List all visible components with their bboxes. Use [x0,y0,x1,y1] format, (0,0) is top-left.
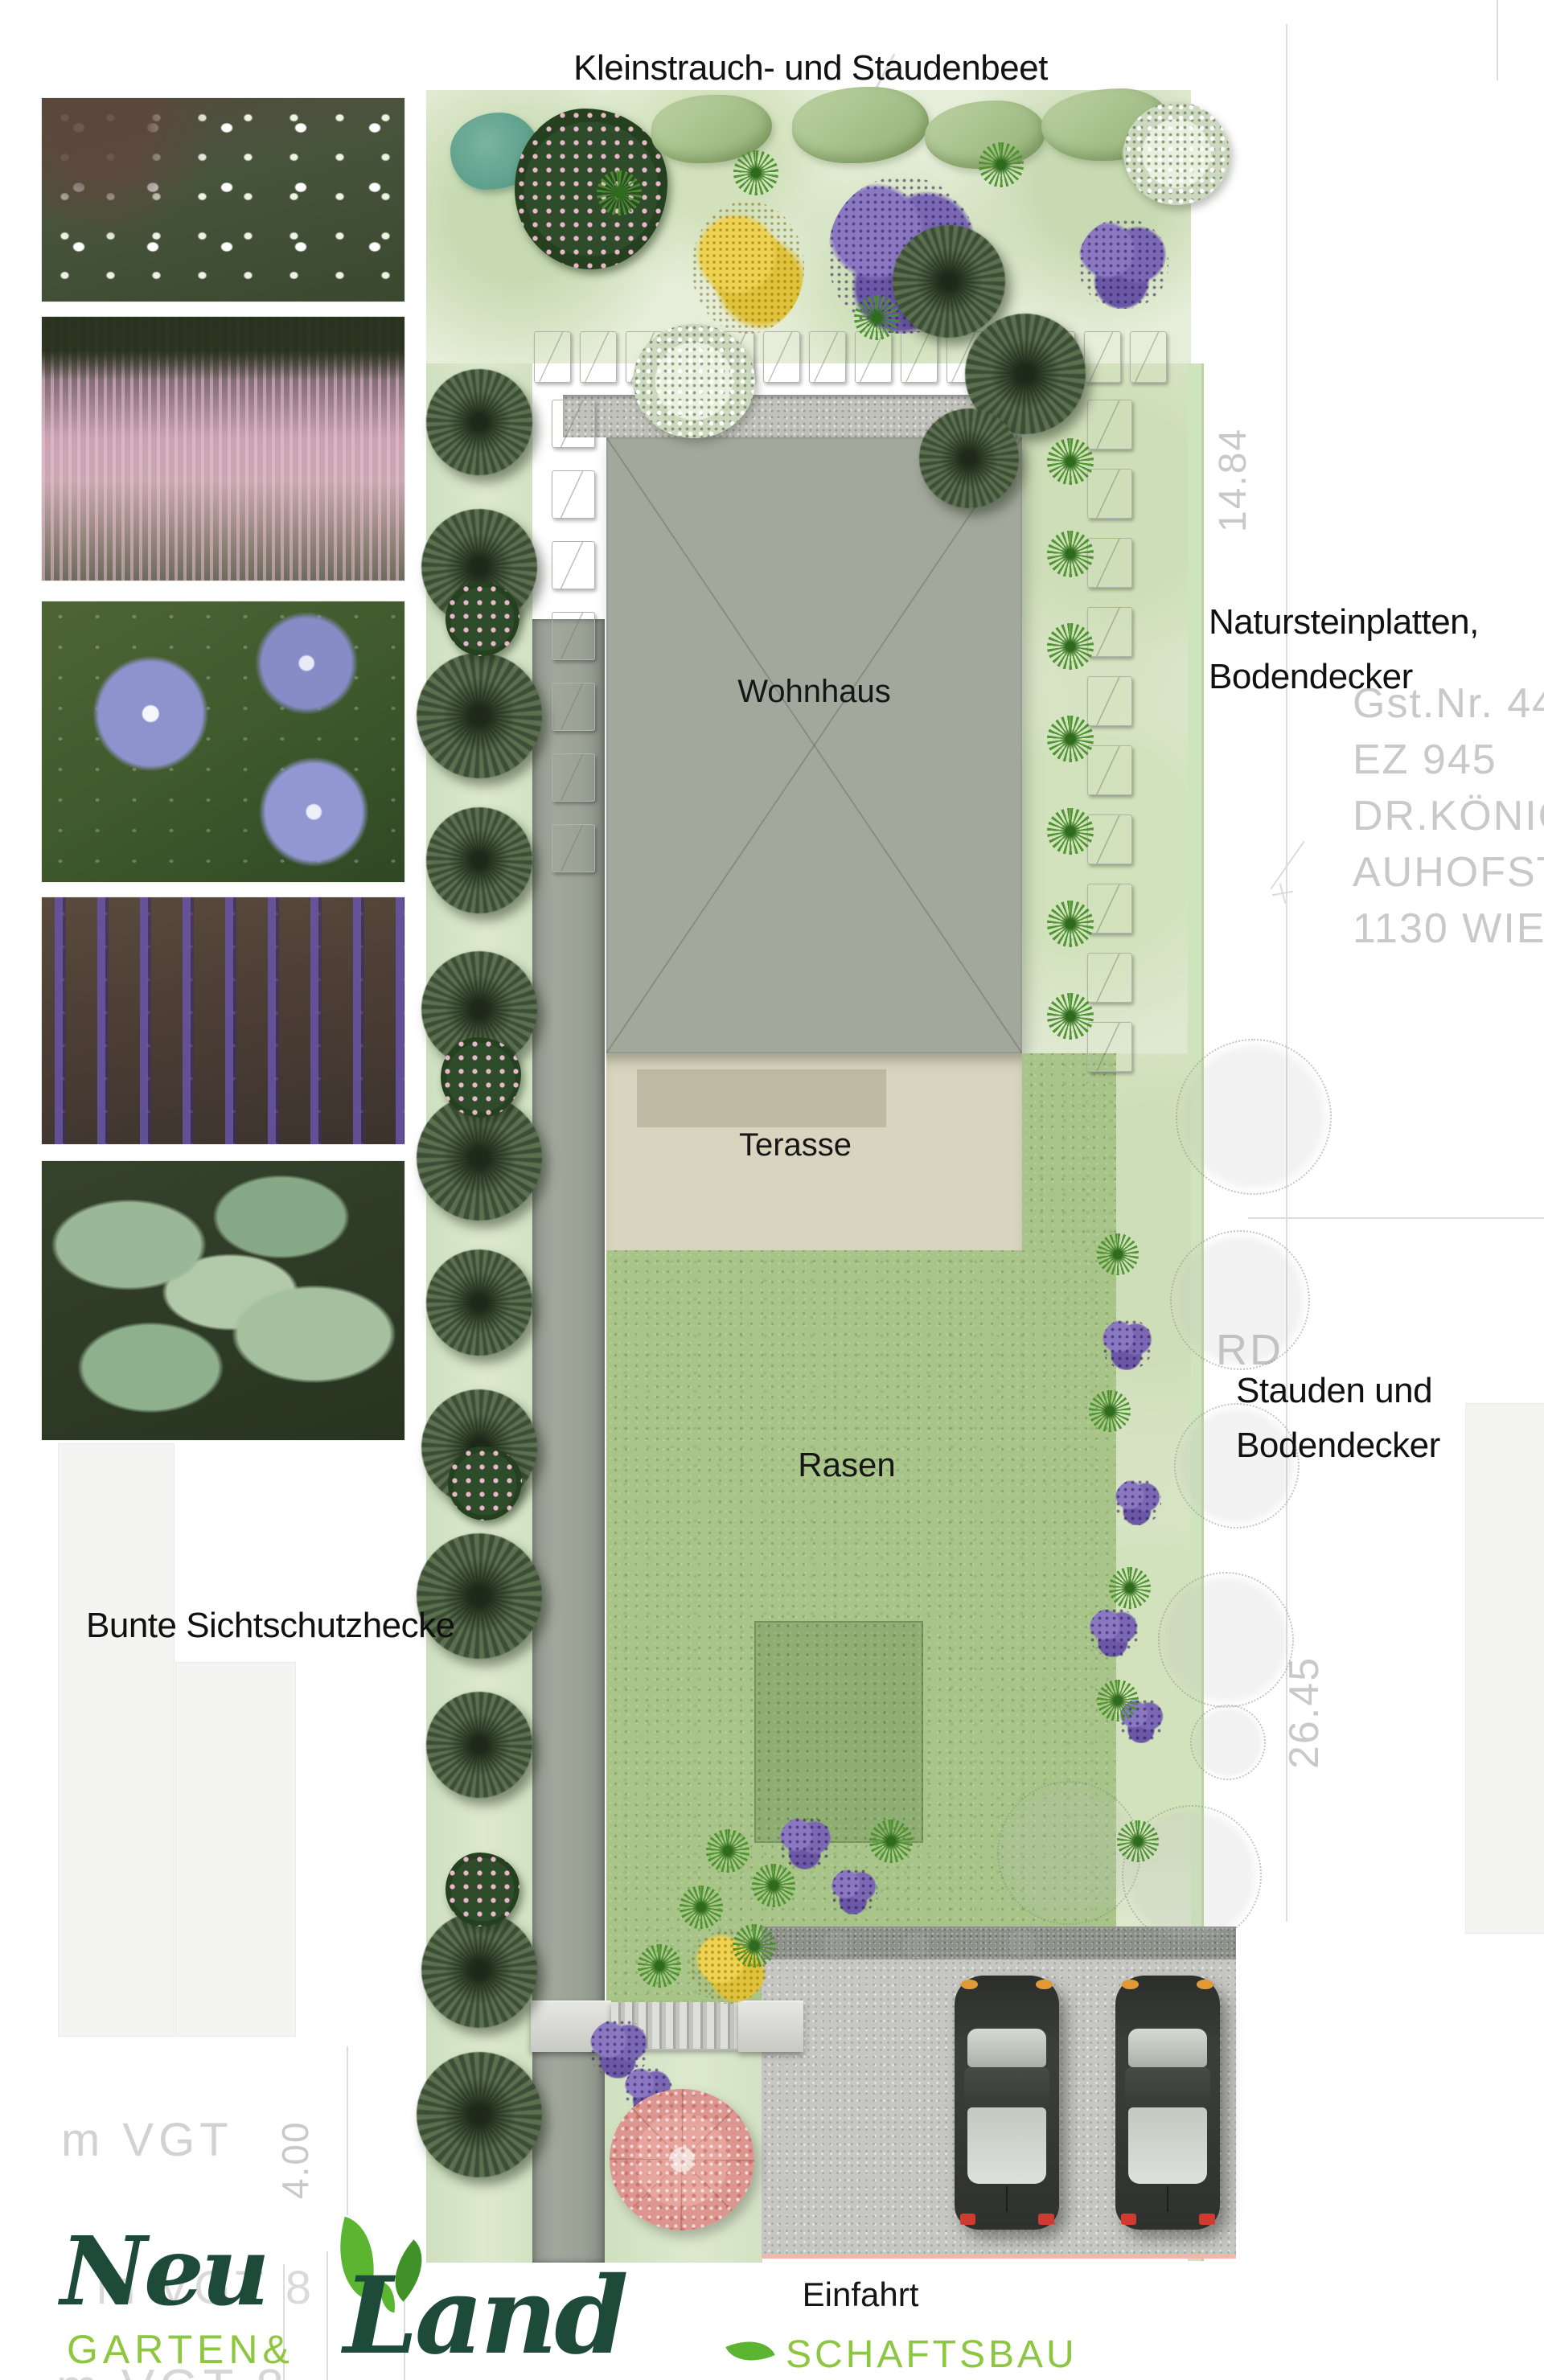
hedge-conifer [426,1692,532,1798]
neighbor-building-right [1465,1403,1544,1934]
groundcover-tuft [1047,623,1094,670]
groundcover-tuft [1047,808,1094,855]
bottom-purple-perennial [779,1816,832,1869]
step-landing-right [738,2000,803,2052]
car-windshield [967,2029,1047,2066]
stepping-stone [1087,538,1132,588]
bed-grass-tuft [733,150,778,195]
existing-tree-sketch [997,1781,1141,1925]
stepping-stone [1087,1022,1132,1072]
land-register-text: EZ 945 [1353,736,1497,784]
stepping-stone [552,541,595,589]
hedge-conifer [417,653,542,778]
existing-tree-sketch [1158,1572,1294,1708]
car-headlight-icon [1122,1980,1139,1990]
stone-area-annotation: Natursteinplatten, Bodendecker [1209,595,1479,704]
border-purple-perennial [1102,1319,1153,1370]
neighbor-building-left-1 [58,1443,175,2037]
existing-tree-sketch [1170,1230,1310,1370]
groundcover-tuft [1047,531,1094,577]
bottom-grass-tuft [680,1886,723,1929]
cadastral-line-top-right [1497,0,1498,80]
bed-grass-tuft [979,142,1024,187]
lawn-label: Rasen [606,1446,1088,1484]
stepping-stone [1087,676,1132,726]
bottom-grass-tuft [638,1944,681,1988]
bottom-purple-perennial [831,1868,877,1914]
house-label: Wohnhaus [606,674,1022,710]
survey-arrow-shaft [1271,841,1305,889]
meadow-patch [754,1621,923,1843]
hedge-conifer [421,1912,537,2028]
stepping-stone [552,400,595,448]
stepping-stone [552,612,595,660]
grid-text-m-vgt: m VGT [61,2113,233,2167]
bottom-grass-tuft [733,1924,776,1968]
border-grass-tuft [1109,1567,1151,1609]
border-grass-tuft [1117,1820,1159,1862]
stepping-stone [580,331,617,383]
bed-lavender-small [1078,219,1168,309]
logo-script-land: Land [343,2254,626,2378]
car-headlight-icon [961,1980,978,1990]
car-antenna [1006,2186,1008,2212]
car-roof [1125,2067,1211,2108]
neighbor-building-left-2 [175,1662,296,2037]
groundcover-tuft [1047,993,1094,1040]
dimension-14-84: 14.84 [1211,428,1255,532]
hedge-annotation: Bunte Sichtschutzhecke [86,1598,455,1653]
stone-area-line1: Natursteinplatten, [1209,595,1479,650]
bed-dark-spiky-shrub [893,225,1005,338]
terrace-shadow [637,1069,886,1127]
bed-title-label: Kleinstrauch- und Staudenbeet [427,48,1194,88]
stepping-stone [1087,469,1132,519]
logo-caps-garten: GARTEN& [67,2326,294,2373]
border-purple-perennial [1089,1607,1139,1657]
cadastral-line-horizontal [1248,1217,1544,1219]
border-purple-perennial [1115,1479,1161,1525]
existing-tree-sketch [1190,1705,1266,1780]
stone-area-line2: Bodendecker [1209,650,1479,704]
car-taillight-icon [1199,2214,1215,2225]
stepping-stone [1087,953,1132,1003]
stepping-stone [534,331,571,383]
leaf-icon [725,2330,774,2372]
photo-white-flower-perennials [42,98,404,302]
garden-plan-canvas: Gst.Nr. 44 EZ 945 DR.KÖNIG AUHOFST 1130 … [0,0,1544,2380]
car-headlight-icon [1036,1980,1053,1990]
bottom-grass-tuft [706,1829,749,1873]
hedge-conifer [417,2052,542,2177]
car-antenna [1167,2186,1168,2212]
photo-blue-periwinkle [42,601,404,882]
stepping-stone [1087,400,1132,449]
car-rear-window [1128,2107,1208,2184]
stepping-stone [552,753,595,802]
stepping-stone [763,331,800,383]
street-text: AUHOFST [1353,848,1544,897]
car-windshield [1128,2029,1208,2066]
hedge-conifer [426,807,532,913]
perennial-area-annotation: Stauden und Bodendecker [1236,1364,1440,1473]
stepping-stone [1087,607,1132,657]
bed-grass-tuft [854,295,899,340]
bed-white-flower-shrub [633,324,755,438]
bed-white-flower-shrub [1123,102,1230,205]
logo-script-neu: Neu [60,2215,267,2327]
owner-text: DR.KÖNIG [1353,792,1544,840]
groundcover-tuft [1047,901,1094,947]
perennial-area-line2: Bodendecker [1236,1418,1440,1473]
dimension-4-00: 4.00 [273,2120,317,2199]
house-footprint [606,437,1022,1053]
hedge-conifer [426,369,532,475]
photo-pink-astilbe [42,317,404,581]
stepping-stone [552,824,595,872]
stepping-stone [901,331,938,383]
stepping-stone [1130,331,1167,383]
stepping-stone [1084,331,1121,383]
driveway-label: Einfahrt [627,2275,1094,2314]
border-grass-tuft [1097,1233,1139,1275]
bed-grass-tuft [597,170,642,215]
border-grass-tuft [1089,1390,1131,1432]
groundcover-tuft [1047,716,1094,762]
parked-car-right [1115,1976,1220,2230]
bottom-grass-tuft [869,1820,913,1863]
photo-hosta-foliage [42,1161,404,1440]
band-plant-sketch [1005,1927,1039,1960]
parked-car-left [955,1976,1059,2230]
car-rear-window [967,2107,1047,2184]
photo-purple-ajuga [42,897,404,1144]
band-plant-sketch [901,1930,931,1960]
bottom-grass-tuft [752,1864,795,1907]
stepping-stone [1087,884,1132,934]
city-text: 1130 WIEN [1353,905,1544,953]
stepping-stone [1087,745,1132,795]
logo-caps-schaftsbau: SCHAFTSBAU [786,2333,1078,2377]
bed-dark-spiky-shrub [919,408,1019,508]
lawn-side-strip [1022,1053,1116,1250]
groundcover-tuft [1047,438,1094,485]
bed-yellow-flowers [692,201,804,334]
car-roof [964,2067,1050,2108]
stepping-stone [552,683,595,731]
existing-tree-sketch [1176,1039,1332,1195]
band-plant-sketch [820,1928,852,1960]
dimension-26-45: 26.45 [1280,1656,1328,1769]
hedge-conifer [426,1249,532,1356]
stepping-stone [809,331,846,383]
stepping-stone [552,470,595,519]
perennial-area-line1: Stauden und [1236,1364,1440,1418]
border-grass-tuft [1097,1680,1139,1721]
dimension-line-4m [347,2046,348,2215]
pink-flowering-tree [610,2089,754,2230]
car-headlight-icon [1197,1980,1213,1990]
stepping-stone [1087,815,1132,864]
terrace-label: Terasse [606,1127,984,1163]
